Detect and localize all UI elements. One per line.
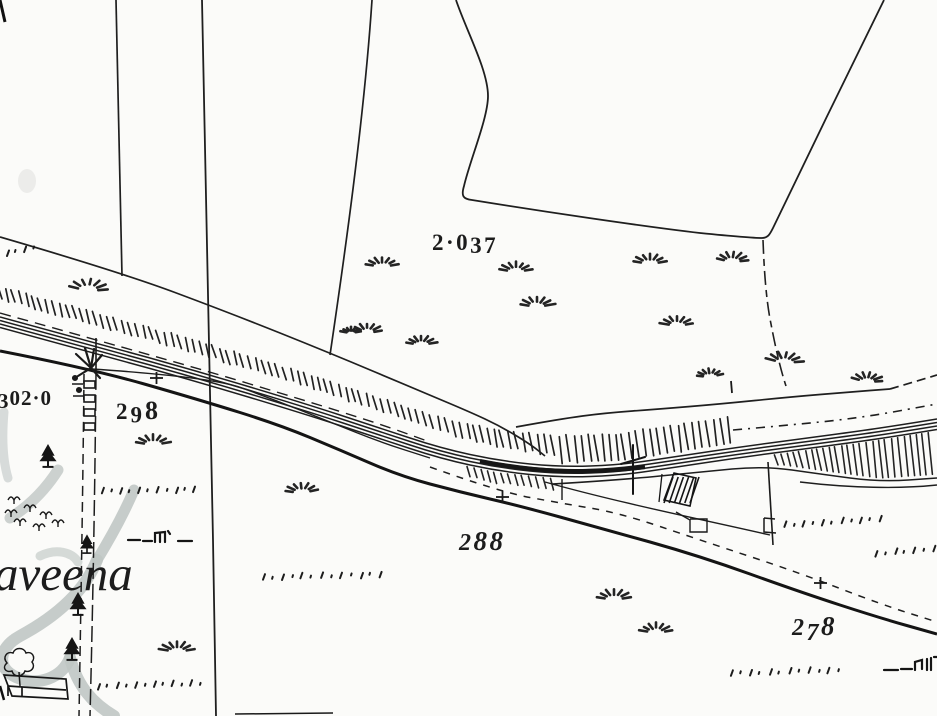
- svg-text:298: 298: [116, 396, 161, 428]
- svg-text:302·0: 302·0: [0, 386, 52, 413]
- svg-text:278: 278: [791, 611, 837, 646]
- svg-text:288: 288: [458, 526, 506, 556]
- svg-text:2·037: 2·037: [432, 230, 498, 258]
- svg-text:aveena: aveena: [0, 546, 133, 601]
